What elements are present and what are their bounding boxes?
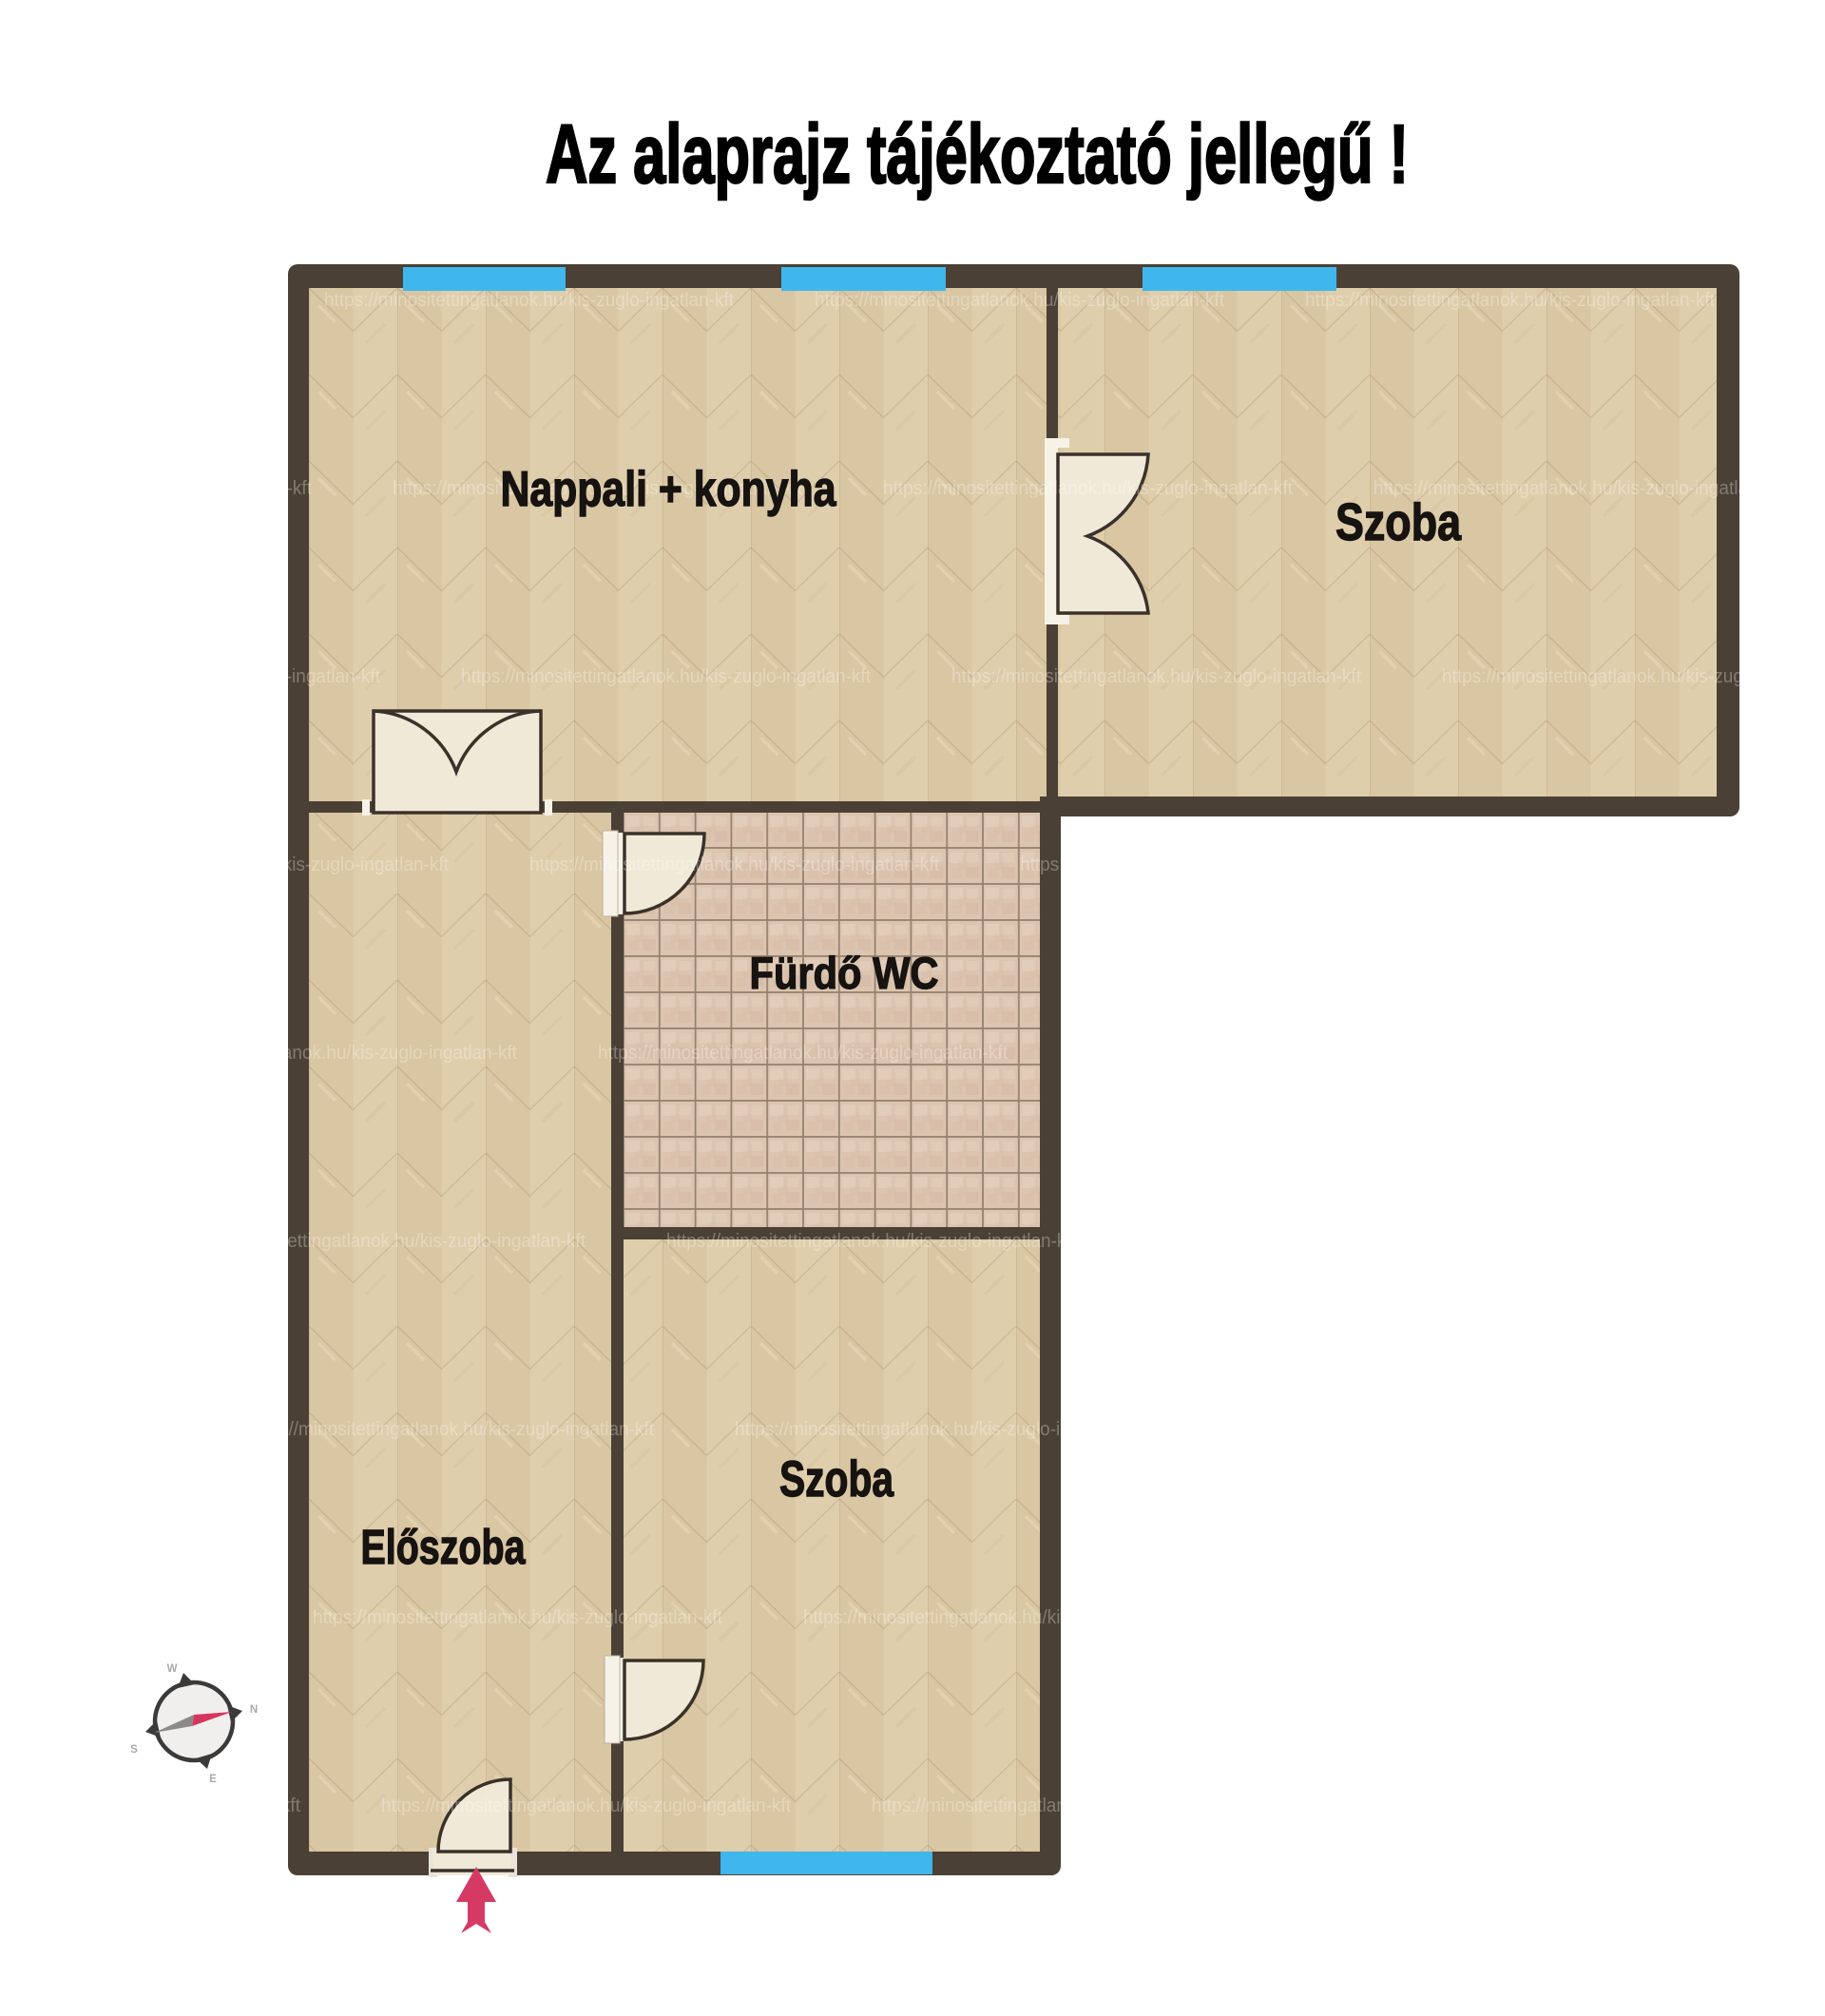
svg-text:https://minositettingatlanok.h: https://minositettingatlanok.hu/kis-zugl… bbox=[176, 1231, 586, 1252]
svg-text:https://minositettingatlanok.h: https://minositettingatlanok.hu/kis-zugl… bbox=[324, 290, 734, 311]
svg-text:https://minositettingatlanok.h: https://minositettingatlanok.hu/kis-zugl… bbox=[381, 1795, 791, 1816]
svg-text:https://minositettingatlanok.h: https://minositettingatlanok.hu/kis-zugl… bbox=[1510, 854, 1825, 875]
svg-text:https://minositettingatlanok.h: https://minositettingatlanok.hu/kis-zugl… bbox=[1294, 1607, 1703, 1628]
svg-text:https://minositettingatlanok.h: https://minositettingatlanok.hu/kis-zugl… bbox=[803, 1607, 1213, 1628]
svg-text:Fürdő WC: Fürdő WC bbox=[750, 948, 939, 998]
svg-text:S: S bbox=[130, 1744, 138, 1756]
svg-text:https://minositettingatlanok.h: https://minositettingatlanok.hu/kis-zugl… bbox=[39, 854, 449, 875]
svg-text:https://minositettingatlanok.h: https://minositettingatlanok.hu/kis-zugl… bbox=[0, 1607, 232, 1628]
svg-text:https://minositettingatlanok.h: https://minositettingatlanok.hu/kis-zugl… bbox=[815, 290, 1224, 311]
svg-text:https://minositettingatlanok.h: https://minositettingatlanok.hu/kis-zugl… bbox=[883, 478, 1293, 499]
svg-text:https://minositettingatlanok.h: https://minositettingatlanok.hu/kis-zugl… bbox=[735, 1419, 1144, 1440]
svg-text:N: N bbox=[250, 1704, 258, 1716]
svg-text:Az alaprajz tájékoztató jelleg: Az alaprajz tájékoztató jellegű ! bbox=[546, 108, 1409, 201]
svg-text:https://minositettingatlanok.h: https://minositettingatlanok.hu/kis-zugl… bbox=[0, 1043, 27, 1064]
svg-text:Nappali + konyha: Nappali + konyha bbox=[501, 462, 837, 517]
svg-text:https://minositettingatlanok.h: https://minositettingatlanok.hu/kis-zugl… bbox=[0, 478, 312, 499]
svg-text:https://minositettingatlanok.h: https://minositettingatlanok.hu/kis-zugl… bbox=[1647, 1231, 1825, 1252]
svg-text:https://minositettingatlanok.h: https://minositettingatlanok.hu/kis-zugl… bbox=[313, 1607, 722, 1628]
svg-text:E: E bbox=[209, 1774, 217, 1785]
svg-text:https://minositettingatlanok.h: https://minositettingatlanok.hu/kis-zugl… bbox=[1716, 1419, 1825, 1440]
svg-text:W: W bbox=[167, 1663, 178, 1675]
svg-text:https://minositettingatlanok.h: https://minositettingatlanok.hu/kis-zugl… bbox=[1579, 1043, 1825, 1064]
svg-text:https://minositettingatlanok.h: https://minositettingatlanok.hu/kis-zugl… bbox=[1796, 290, 1825, 311]
svg-text:https://minositettingatlanok.h: https://minositettingatlanok.hu/kis-zugl… bbox=[0, 666, 380, 687]
svg-text:https://minositettingatlanok.h: https://minositettingatlanok.hu/kis-zugl… bbox=[1442, 666, 1825, 687]
svg-text:https://minositettingatlanok.h: https://minositettingatlanok.hu/kis-zugl… bbox=[529, 854, 939, 875]
svg-text:https://minositettingatlanok.h: https://minositettingatlanok.hu/kis-zugl… bbox=[1305, 290, 1715, 311]
svg-text:https://minositettingatlanok.h: https://minositettingatlanok.hu/kis-zugl… bbox=[1362, 1795, 1772, 1816]
svg-text:https://minositettingatlanok.h: https://minositettingatlanok.hu/kis-zugl… bbox=[0, 290, 243, 311]
svg-text:https://minositettingatlanok.h: https://minositettingatlanok.hu/kis-zugl… bbox=[0, 1419, 163, 1440]
svg-text:Szoba: Szoba bbox=[779, 1451, 893, 1507]
svg-text:Szoba: Szoba bbox=[1335, 492, 1461, 551]
svg-text:https://minositettingatlanok.h: https://minositettingatlanok.hu/kis-zugl… bbox=[872, 1795, 1281, 1816]
svg-text:https://minositettingatlanok.h: https://minositettingatlanok.hu/kis-zugl… bbox=[461, 666, 871, 687]
svg-text:Előszoba: Előszoba bbox=[361, 1520, 526, 1574]
svg-text:https://minositettingatlanok.h: https://minositettingatlanok.hu/kis-zugl… bbox=[1784, 1607, 1825, 1628]
svg-text:https://minositettingatlanok.h: https://minositettingatlanok.hu/kis-zugl… bbox=[666, 1231, 1076, 1252]
svg-text:https://minositettingatlanok.h: https://minositettingatlanok.hu/kis-zugl… bbox=[1157, 1231, 1566, 1252]
svg-text:https://minositettingatlanok.h: https://minositettingatlanok.hu/kis-zugl… bbox=[1225, 1419, 1635, 1440]
svg-text:https://minositettingatlanok.h: https://minositettingatlanok.hu/kis-zugl… bbox=[598, 1043, 1008, 1064]
svg-text:https://minositettingatlanok.h: https://minositettingatlanok.hu/kis-zugl… bbox=[1020, 854, 1430, 875]
svg-text:https://minositettingatlanok.h: https://minositettingatlanok.hu/kis-zugl… bbox=[244, 1419, 654, 1440]
svg-text:https://minositettingatlanok.h: https://minositettingatlanok.hu/kis-zugl… bbox=[107, 1043, 517, 1064]
svg-text:https://minositettingatlanok.h: https://minositettingatlanok.hu/kis-zugl… bbox=[0, 1795, 300, 1816]
svg-text:https://minositettingatlanok.h: https://minositettingatlanok.hu/kis-zugl… bbox=[0, 1231, 95, 1252]
svg-text:https://minositettingatlanok.h: https://minositettingatlanok.hu/kis-zugl… bbox=[1088, 1043, 1498, 1064]
svg-text:https://minositettingatlanok.h: https://minositettingatlanok.hu/kis-zugl… bbox=[951, 666, 1361, 687]
